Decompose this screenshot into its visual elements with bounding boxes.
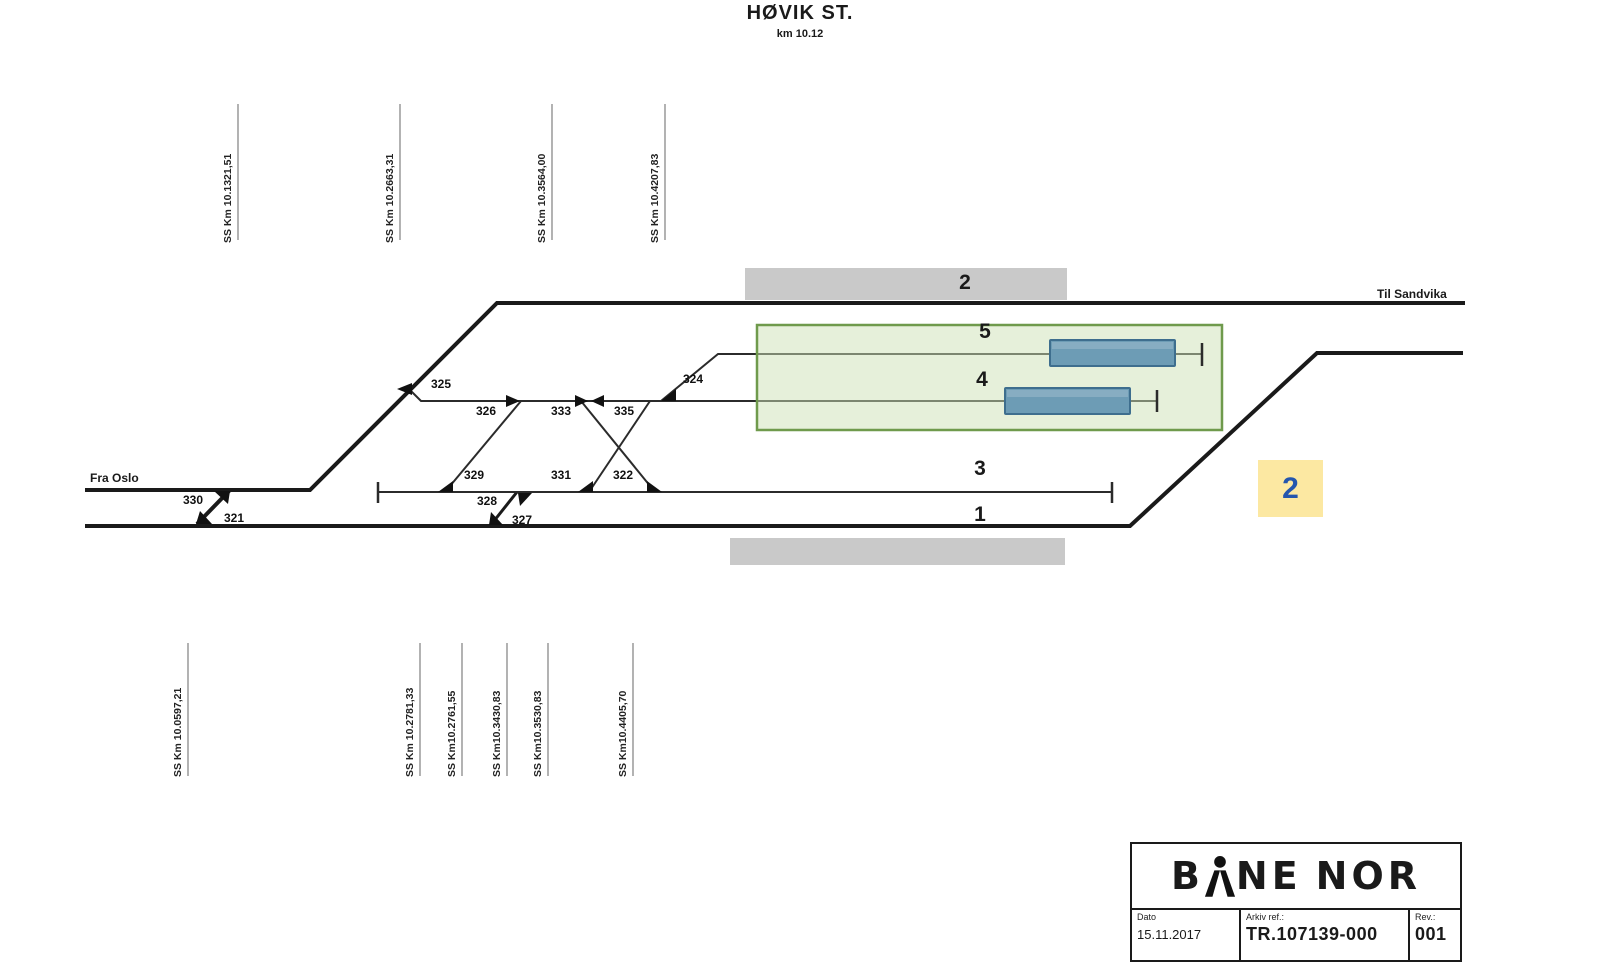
titleblock-rev-cell: Rev.: 001 xyxy=(1408,910,1460,960)
archive-ref-label: Arkiv ref.: xyxy=(1246,912,1403,922)
switch-label-327: 327 xyxy=(512,513,532,527)
train-block-track5-sheen xyxy=(1052,342,1173,349)
track-diagram xyxy=(0,0,1600,971)
track-3-label: 3 xyxy=(965,457,995,481)
platform-2-label: 2 xyxy=(950,271,980,295)
switch-markers xyxy=(196,383,676,525)
date-value: 15.11.2017 xyxy=(1137,927,1234,942)
switch-322-marker xyxy=(647,481,662,492)
rev-label: Rev.: xyxy=(1415,912,1455,922)
switch-label-322: 322 xyxy=(613,468,633,482)
switch-label-331: 331 xyxy=(551,468,571,482)
km-marker-top-4: SS Km 10.4207,83 xyxy=(649,103,663,243)
train-block-track4-sheen xyxy=(1007,390,1128,397)
km-marker-bottom-2: SS Km 10.2781,33 xyxy=(404,637,418,777)
logo-letters-ne: NE xyxy=(1236,857,1302,895)
km-marker-lines xyxy=(188,104,665,776)
direction-from-oslo: Fra Oslo xyxy=(90,471,139,485)
banenor-a-icon xyxy=(1204,855,1236,897)
km-marker-bottom-5: SS Km10.3530,83 xyxy=(532,637,546,777)
banenor-logo: B NE NOR xyxy=(1132,844,1460,910)
switch-label-328: 328 xyxy=(477,494,497,508)
titleblock-date-cell: Dato 15.11.2017 xyxy=(1132,910,1239,960)
switch-label-321: 321 xyxy=(224,511,244,525)
switch-label-329: 329 xyxy=(464,468,484,482)
track-4-label: 4 xyxy=(967,368,997,392)
switch-label-325: 325 xyxy=(431,377,451,391)
km-marker-top-3: SS Km 10.3564,00 xyxy=(536,103,550,243)
platform-1-bar xyxy=(730,538,1065,565)
switch-333-marker xyxy=(575,395,588,407)
track-5-label: 5 xyxy=(970,320,1000,344)
km-marker-bottom-3: SS Km10.2761,55 xyxy=(446,637,460,777)
track-1-label: 1 xyxy=(965,503,995,527)
switch-label-335: 335 xyxy=(614,404,634,418)
archive-ref-value: TR.107139-000 xyxy=(1246,924,1403,945)
km-marker-top-2: SS Km 10.2663,31 xyxy=(384,103,398,243)
km-marker-bottom-6: SS Km10.4405,70 xyxy=(617,637,631,777)
titleblock-ref-cell: Arkiv ref.: TR.107139-000 xyxy=(1239,910,1408,960)
track-schematic-page: HØVIK ST. km 10.12 Fra Oslo Til Sandvika… xyxy=(0,0,1600,971)
train-number-badge-text: 2 xyxy=(1282,472,1299,506)
logo-letter-b: B xyxy=(1171,857,1204,895)
train-number-badge[interactable]: 2 xyxy=(1258,460,1323,517)
switch-label-324: 324 xyxy=(683,372,703,386)
direction-til-sandvika: Til Sandvika xyxy=(1377,287,1447,301)
switch-335-marker xyxy=(591,395,604,407)
km-marker-top-1: SS Km 10.1321,51 xyxy=(222,103,236,243)
switch-label-333: 333 xyxy=(551,404,571,418)
switch-label-330: 330 xyxy=(183,493,203,507)
platform-2-bar xyxy=(745,268,1067,300)
rev-value: 001 xyxy=(1415,924,1455,945)
station-km: km 10.12 xyxy=(0,28,1600,40)
switch-label-326: 326 xyxy=(476,404,496,418)
station-title: HØVIK ST. xyxy=(0,2,1600,25)
switch-331-marker xyxy=(578,481,593,492)
km-marker-bottom-1: SS Km 10.0597,21 xyxy=(172,637,186,777)
switch-329-marker xyxy=(438,481,453,492)
km-marker-bottom-4: SS Km10.3430,83 xyxy=(491,637,505,777)
date-label: Dato xyxy=(1137,912,1234,922)
switch-328-marker xyxy=(518,493,532,506)
logo-letters-nor: NOR xyxy=(1316,857,1421,895)
title-block: B NE NOR Dato 15.11.2017 Arkiv ref.: TR.… xyxy=(1130,842,1462,962)
